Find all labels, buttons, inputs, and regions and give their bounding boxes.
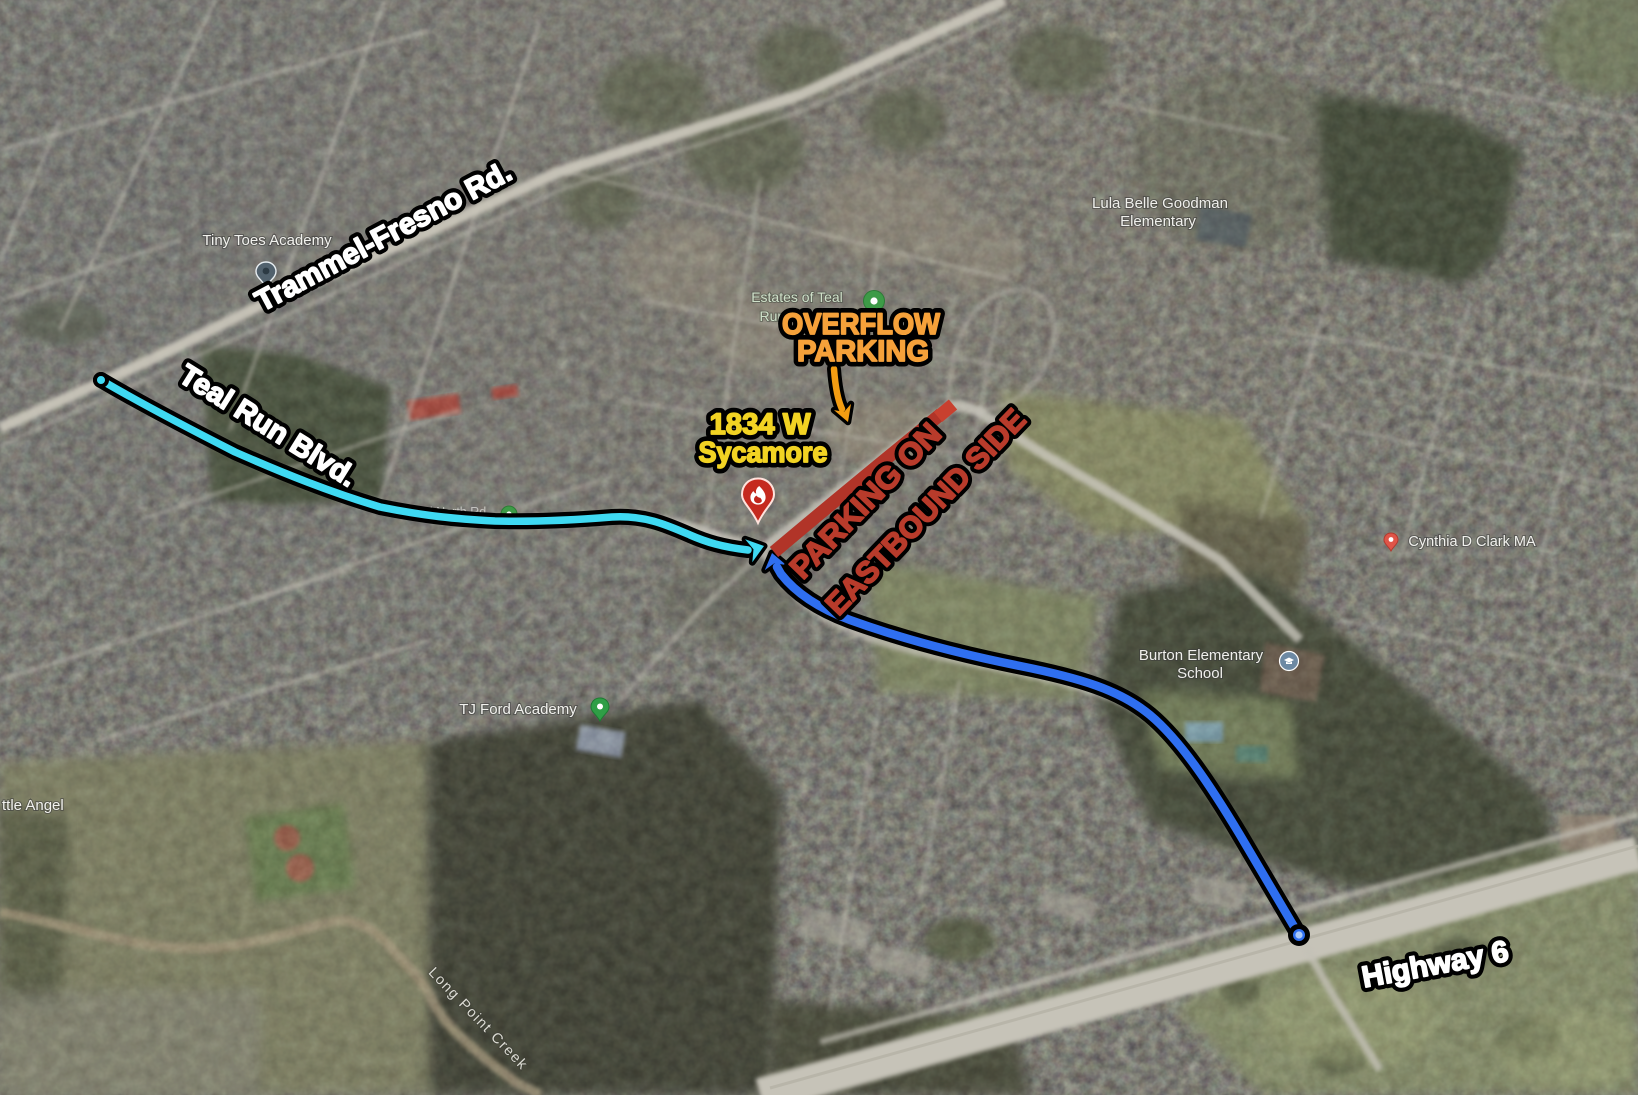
svg-text:School: School <box>1177 665 1223 682</box>
svg-text:Cynthia D Clark MA: Cynthia D Clark MA <box>1408 534 1536 550</box>
svg-text:PARKING: PARKING <box>797 335 929 368</box>
svg-text:Estates of Teal: Estates of Teal <box>751 289 843 305</box>
svg-text:Sycamore: Sycamore <box>699 437 828 469</box>
svg-text:TJ Ford Academy: TJ Ford Academy <box>459 701 577 718</box>
svg-text:Burton Elementary: Burton Elementary <box>1139 647 1264 664</box>
svg-text:Elementary: Elementary <box>1120 213 1196 230</box>
svg-text:Lula Belle Goodman: Lula Belle Goodman <box>1092 195 1228 212</box>
svg-text:ttle Angel: ttle Angel <box>2 797 64 814</box>
svg-text:Tiny Toes Academy: Tiny Toes Academy <box>202 232 332 249</box>
